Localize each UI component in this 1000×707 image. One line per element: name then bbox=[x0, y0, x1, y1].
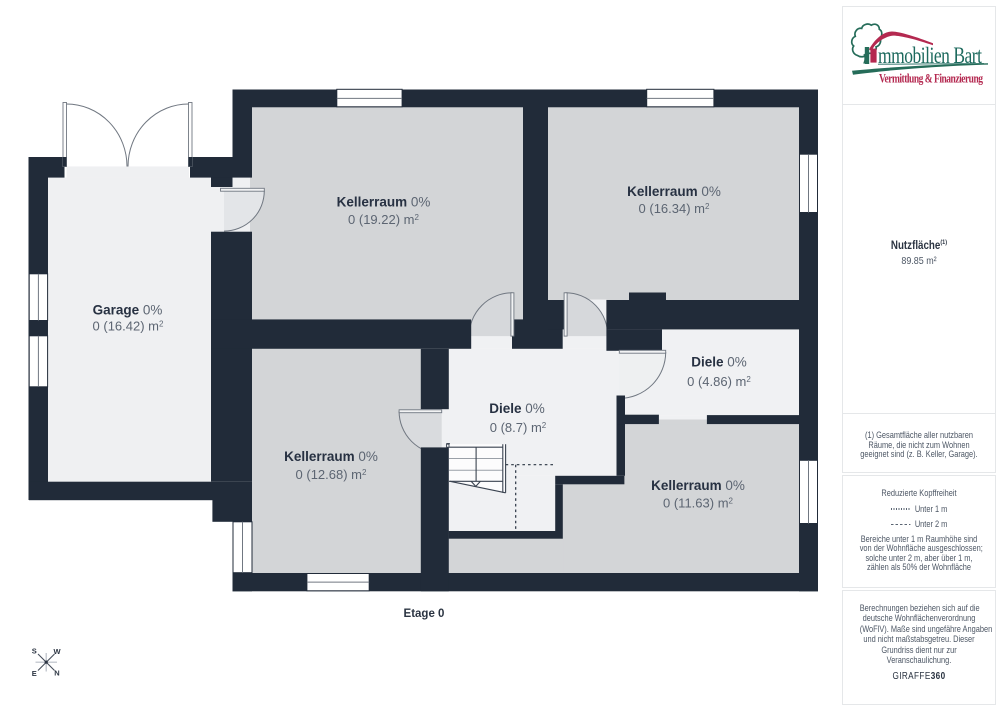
svg-text:0 (11.63) m2: 0 (11.63) m2 bbox=[663, 496, 734, 511]
svg-text:Kellerraum 0%: Kellerraum 0% bbox=[627, 184, 721, 199]
svg-text:Kellerraum 0%: Kellerraum 0% bbox=[284, 449, 378, 464]
svg-text:Kellerraum 0%: Kellerraum 0% bbox=[337, 195, 431, 210]
svg-text:0 (16.42) m2: 0 (16.42) m2 bbox=[93, 319, 164, 334]
svg-text:0 (16.34) m2: 0 (16.34) m2 bbox=[639, 201, 710, 216]
svg-text:S: S bbox=[32, 647, 37, 656]
svg-text:0 (8.7) m2: 0 (8.7) m2 bbox=[490, 420, 547, 435]
svg-text:Diele 0%: Diele 0% bbox=[691, 355, 747, 370]
svg-text:Etage 0: Etage 0 bbox=[404, 608, 445, 620]
svg-text:Diele 0%: Diele 0% bbox=[489, 401, 545, 416]
svg-text:N: N bbox=[54, 669, 59, 678]
svg-text:Garage 0%: Garage 0% bbox=[93, 303, 163, 318]
svg-text:0 (19.22) m2: 0 (19.22) m2 bbox=[348, 212, 419, 227]
svg-text:0 (12.68) m2: 0 (12.68) m2 bbox=[296, 467, 367, 482]
svg-text:E: E bbox=[32, 669, 37, 678]
svg-text:W: W bbox=[53, 647, 61, 656]
svg-text:0 (4.86) m2: 0 (4.86) m2 bbox=[687, 374, 751, 389]
svg-text:Vermittlung & Finanzierung: Vermittlung & Finanzierung bbox=[879, 72, 983, 86]
svg-text:Kellerraum 0%: Kellerraum 0% bbox=[651, 478, 745, 493]
